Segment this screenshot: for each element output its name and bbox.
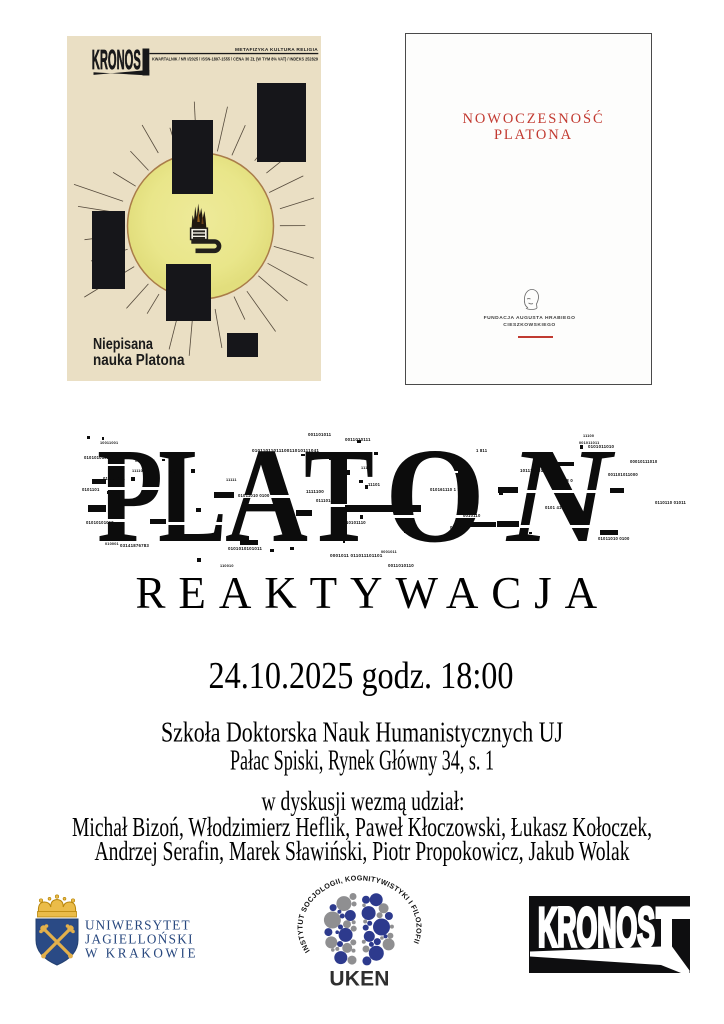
svg-text:Pałac Spiski, Rynek Główny 34,: Pałac Spiski, Rynek Główny 34, s. 1	[230, 746, 494, 777]
svg-text:INSTYTUT SOCJOLOGII, KOGNITYWI: INSTYTUT SOCJOLOGII, KOGNITYWISTYKI I FI…	[295, 873, 423, 954]
svg-text:Szkoła Doktorska Nauk Humanist: Szkoła Doktorska Nauk Humanistycznych UJ	[161, 718, 563, 749]
svg-text:24.10.2025 godz. 18:00: 24.10.2025 godz. 18:00	[209, 655, 514, 697]
svg-text:UKEN: UKEN	[329, 968, 389, 991]
svg-text:Andrzej Serafin, Marek Sławińs: Andrzej Serafin, Marek Sławiński, Piotr …	[95, 836, 630, 866]
svg-text:W KRAKOWIE: W KRAKOWIE	[85, 946, 197, 961]
svg-text:UNIWERSYTET: UNIWERSYTET	[85, 918, 191, 933]
svg-text:REAKTYWACJA: REAKTYWACJA	[136, 568, 610, 618]
svg-text:JAGIELLOŃSKI: JAGIELLOŃSKI	[85, 932, 194, 947]
